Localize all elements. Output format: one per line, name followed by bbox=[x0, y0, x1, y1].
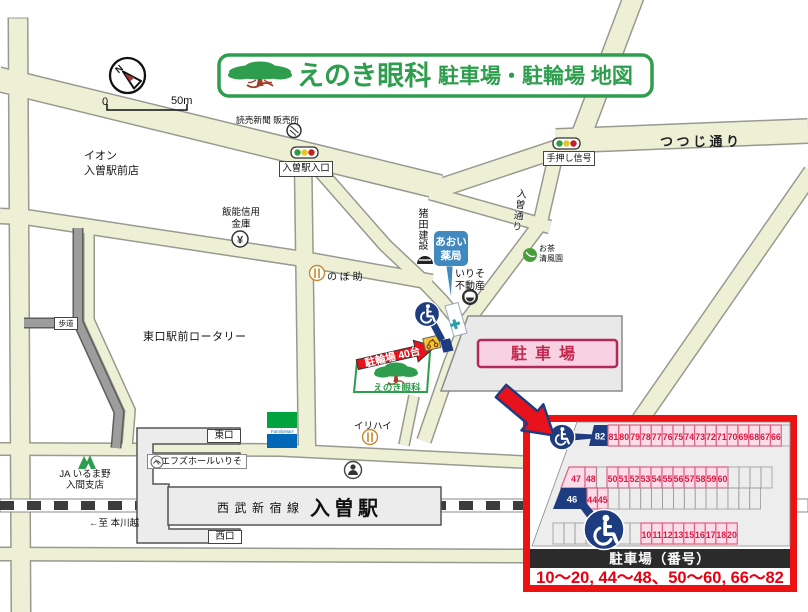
svg-text:55: 55 bbox=[663, 474, 673, 484]
svg-text:47: 47 bbox=[571, 474, 581, 484]
svg-text:58: 58 bbox=[696, 474, 706, 484]
svg-text:66: 66 bbox=[771, 432, 781, 442]
svg-text:73: 73 bbox=[695, 432, 705, 442]
svg-text:82: 82 bbox=[595, 432, 606, 443]
svg-text:67: 67 bbox=[760, 432, 770, 442]
svg-text:45: 45 bbox=[598, 495, 608, 505]
svg-text:57: 57 bbox=[685, 474, 695, 484]
svg-text:75: 75 bbox=[674, 432, 684, 442]
svg-text:60: 60 bbox=[718, 474, 728, 484]
svg-text:68: 68 bbox=[749, 432, 759, 442]
svg-text:53: 53 bbox=[641, 474, 651, 484]
svg-text:69: 69 bbox=[739, 432, 749, 442]
svg-text:50: 50 bbox=[608, 474, 618, 484]
svg-text:10: 10 bbox=[642, 530, 652, 540]
svg-text:71: 71 bbox=[717, 432, 727, 442]
svg-text:駐車場（番号）: 駐車場（番号） bbox=[609, 551, 711, 567]
svg-text:20: 20 bbox=[727, 530, 737, 540]
svg-text:16: 16 bbox=[695, 530, 705, 540]
svg-text:46: 46 bbox=[567, 495, 578, 506]
svg-text:74: 74 bbox=[684, 432, 694, 442]
svg-text:51: 51 bbox=[619, 474, 629, 484]
svg-text:81: 81 bbox=[609, 432, 619, 442]
svg-text:54: 54 bbox=[652, 474, 662, 484]
svg-text:76: 76 bbox=[663, 432, 673, 442]
svg-text:17: 17 bbox=[706, 530, 716, 540]
svg-text:10～20, 44～48、50～60, 66～82: 10～20, 44～48、50～60, 66～82 bbox=[536, 569, 784, 587]
svg-text:70: 70 bbox=[728, 432, 738, 442]
svg-text:13: 13 bbox=[674, 530, 684, 540]
svg-text:78: 78 bbox=[641, 432, 651, 442]
svg-text:77: 77 bbox=[652, 432, 662, 442]
svg-text:44: 44 bbox=[587, 495, 597, 505]
svg-text:79: 79 bbox=[630, 432, 640, 442]
svg-text:52: 52 bbox=[630, 474, 640, 484]
svg-text:12: 12 bbox=[663, 530, 673, 540]
svg-text:48: 48 bbox=[586, 474, 596, 484]
svg-text:18: 18 bbox=[716, 530, 726, 540]
svg-text:59: 59 bbox=[707, 474, 717, 484]
svg-text:56: 56 bbox=[674, 474, 684, 484]
svg-text:11: 11 bbox=[652, 530, 661, 540]
svg-text:80: 80 bbox=[619, 432, 629, 442]
svg-text:15: 15 bbox=[684, 530, 694, 540]
svg-text:72: 72 bbox=[706, 432, 716, 442]
